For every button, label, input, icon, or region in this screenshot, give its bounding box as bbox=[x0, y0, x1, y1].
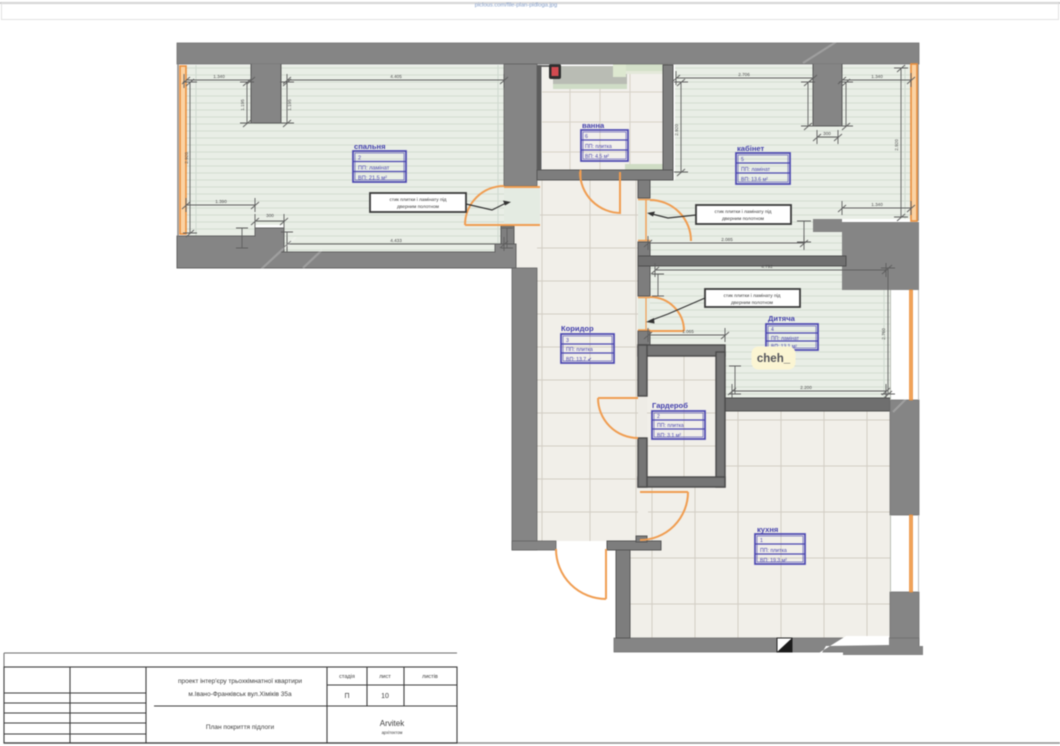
svg-text:ВП: 3.1 м²: ВП: 3.1 м² bbox=[657, 433, 681, 439]
svg-text:300: 300 bbox=[266, 213, 274, 218]
svg-text:ПП: плитка: ПП: плитка bbox=[566, 347, 593, 353]
svg-text:ВП: 19.3 м²: ВП: 19.3 м² bbox=[760, 558, 787, 564]
svg-text:4: 4 bbox=[771, 327, 774, 333]
svg-text:2.085: 2.085 bbox=[721, 237, 733, 242]
svg-text:4.433: 4.433 bbox=[390, 238, 402, 243]
svg-text:4.792: 4.792 bbox=[761, 264, 773, 269]
svg-text:2.920: 2.920 bbox=[894, 139, 899, 151]
svg-text:2: 2 bbox=[358, 156, 361, 162]
svg-text:проект інтер'єру трьохкімнатно: проект інтер'єру трьохкімнатної квартири bbox=[178, 677, 302, 685]
svg-text:План покриття підлоги: План покриття підлоги bbox=[206, 723, 275, 731]
svg-text:2.760: 2.760 bbox=[881, 328, 886, 340]
svg-text:стик плитки і ламінату під: стик плитки і ламінату під bbox=[715, 209, 772, 215]
svg-text:дверним полотном: дверним полотном bbox=[722, 217, 764, 222]
svg-text:кабінет: кабінет bbox=[737, 144, 765, 153]
svg-text:ВП: 4.5 м²: ВП: 4.5 м² bbox=[585, 154, 609, 160]
svg-text:3: 3 bbox=[566, 338, 569, 344]
svg-text:1.065: 1.065 bbox=[682, 329, 694, 334]
svg-text:5: 5 bbox=[741, 157, 744, 163]
svg-text:1.340: 1.340 bbox=[871, 74, 883, 79]
svg-text:Коридор: Коридор bbox=[561, 324, 594, 333]
svg-text:лист: лист bbox=[379, 674, 391, 680]
svg-text:2.920: 2.920 bbox=[674, 124, 679, 136]
svg-text:архітектом: архітектом bbox=[382, 730, 403, 735]
svg-text:ПП: плитка: ПП: плитка bbox=[760, 548, 787, 554]
svg-text:Arvitek: Arvitek bbox=[380, 719, 405, 728]
svg-text:стик плитки і ламінату під: стик плитки і ламінату під bbox=[390, 197, 447, 203]
svg-text:Гардероб: Гардероб bbox=[652, 401, 688, 410]
svg-text:2.920: 2.920 bbox=[184, 152, 189, 164]
svg-text:1.340: 1.340 bbox=[213, 74, 225, 79]
svg-text:ВП: 21.5 м²: ВП: 21.5 м² bbox=[358, 176, 387, 182]
svg-text:Дитяча: Дитяча bbox=[768, 314, 796, 323]
svg-text:стадія: стадія bbox=[339, 674, 355, 680]
svg-text:ПП: плитка: ПП: плитка bbox=[657, 423, 684, 429]
svg-text:4.405: 4.405 bbox=[390, 74, 402, 79]
svg-text:спальня: спальня bbox=[354, 142, 386, 151]
svg-text:300: 300 bbox=[823, 131, 831, 136]
svg-text:ВП: 13.6 м²: ВП: 13.6 м² bbox=[741, 177, 768, 183]
svg-text:кухня: кухня bbox=[757, 525, 778, 534]
svg-text:10: 10 bbox=[381, 693, 389, 700]
svg-text:ПП: ламінат: ПП: ламінат bbox=[771, 336, 800, 342]
svg-text:м.Івано-Франківськ вул.Хіміків: м.Івано-Франківськ вул.Хіміків 35а bbox=[188, 690, 292, 698]
svg-text:cheh_: cheh_ bbox=[757, 353, 791, 365]
svg-text:1.340: 1.340 bbox=[871, 202, 883, 207]
svg-text:листів: листів bbox=[422, 674, 438, 680]
svg-text:стик плитки і ламінату під: стик плитки і ламінату під bbox=[724, 293, 781, 299]
svg-text:1.195: 1.195 bbox=[287, 99, 292, 111]
svg-text:дверним полотном: дверним полотном bbox=[731, 301, 773, 306]
svg-text:1: 1 bbox=[760, 538, 763, 544]
svg-text:ПП: ламінат: ПП: ламінат bbox=[358, 166, 390, 172]
svg-text:1.195: 1.195 bbox=[240, 99, 245, 111]
svg-text:П: П bbox=[344, 693, 349, 700]
svg-text:ПП: ламінат: ПП: ламінат bbox=[741, 167, 771, 173]
svg-text:ванна: ванна bbox=[582, 121, 605, 130]
svg-text:2.200: 2.200 bbox=[800, 385, 812, 390]
svg-text:ВП: 13.7 ✔: ВП: 13.7 ✔ bbox=[566, 357, 592, 363]
svg-text:piclous.com/file-plan-pidloga.: piclous.com/file-plan-pidloga.jpg bbox=[475, 3, 558, 9]
svg-text:2: 2 bbox=[657, 414, 660, 420]
svg-text:2.706: 2.706 bbox=[738, 72, 750, 77]
svg-text:ПП: плитка: ПП: плитка bbox=[585, 144, 612, 150]
svg-text:6: 6 bbox=[585, 134, 588, 140]
svg-text:1.390: 1.390 bbox=[215, 199, 227, 204]
svg-text:дверним полотном: дверним полотном bbox=[397, 205, 439, 210]
